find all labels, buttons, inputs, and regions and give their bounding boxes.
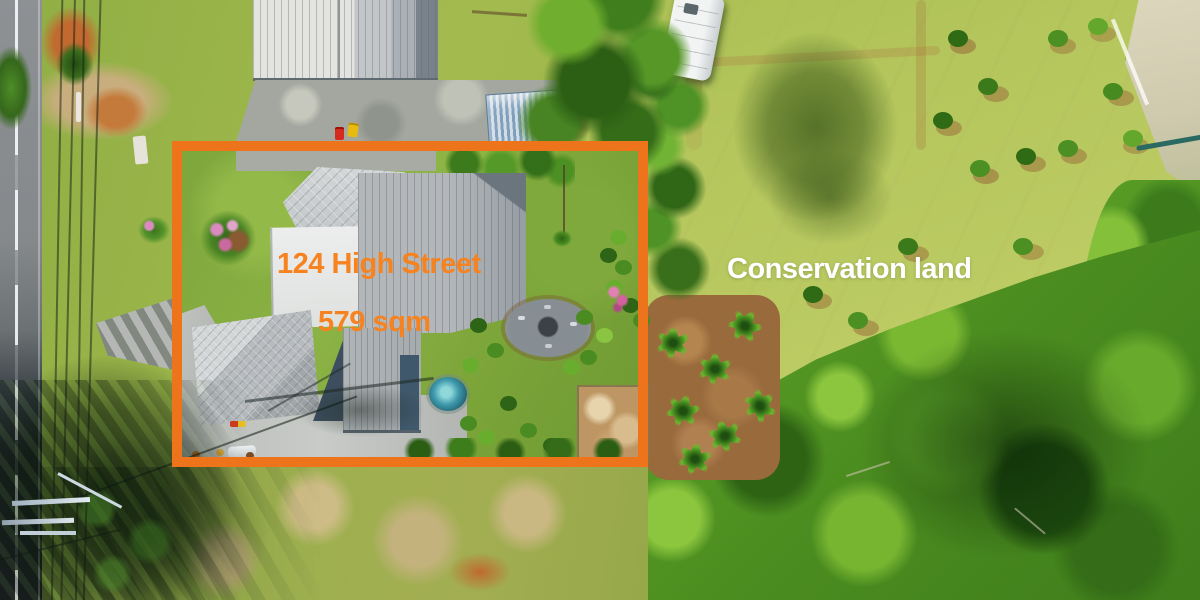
flowering-shrub: [138, 216, 170, 244]
flower-pots: [0, 0, 8, 7]
large-tree-shadow-extension: [768, 150, 893, 245]
red-wheelie-bin: [335, 127, 344, 140]
white-sign: [133, 135, 149, 164]
shed-roof-seam: [338, 0, 340, 78]
forest-shadow-mass: [860, 330, 1150, 560]
shed-roof: [253, 0, 438, 81]
conservation-land-label: Conservation land: [727, 253, 972, 286]
property-boundary-outline: [172, 141, 648, 467]
land-area-label: 579 sqm: [318, 306, 431, 339]
address-label: 124 High Street: [277, 248, 481, 281]
yellow-wheelie-bin: [347, 122, 359, 137]
white-post: [76, 92, 81, 122]
dirt-trail-secondary: [916, 0, 926, 150]
dirt-patch-front: [438, 546, 522, 598]
aerial-property-photo: 124 High Street 579 sqm Conservation lan…: [0, 0, 1200, 600]
dirt-patch-orange-small: [84, 86, 148, 138]
power-pole-crossarm: [20, 531, 76, 535]
